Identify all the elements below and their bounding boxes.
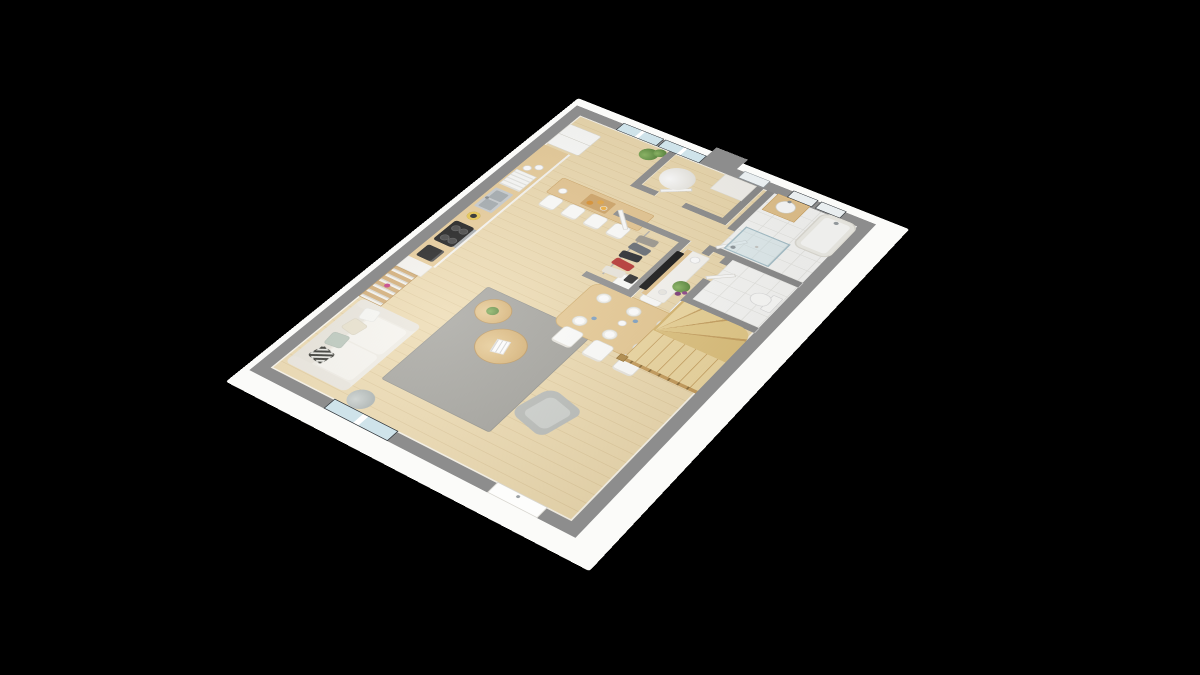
floor-plan-3d <box>226 98 909 571</box>
shower-head <box>729 245 736 250</box>
tub-faucet <box>833 221 840 225</box>
fridge-door-split <box>559 133 590 146</box>
room-living <box>271 367 272 368</box>
building-slab <box>226 98 909 571</box>
decor-bowl <box>656 288 668 296</box>
wood-floor <box>271 116 858 522</box>
utility-left-wall-upper <box>637 185 659 196</box>
entry-door-handle <box>515 495 521 499</box>
magazine <box>490 339 512 355</box>
armchair-seat <box>522 396 574 431</box>
croissant <box>596 199 605 205</box>
exterior-wall-stub <box>706 147 747 169</box>
exterior-walls <box>249 105 876 537</box>
vase <box>688 256 703 265</box>
table-plant <box>484 305 502 316</box>
vanity-basin <box>772 199 800 216</box>
croissant <box>585 200 594 206</box>
juice-glass <box>598 205 609 211</box>
scene-canvas <box>0 0 1200 675</box>
book-accent-pink <box>383 283 392 289</box>
shower-drain <box>754 245 759 248</box>
